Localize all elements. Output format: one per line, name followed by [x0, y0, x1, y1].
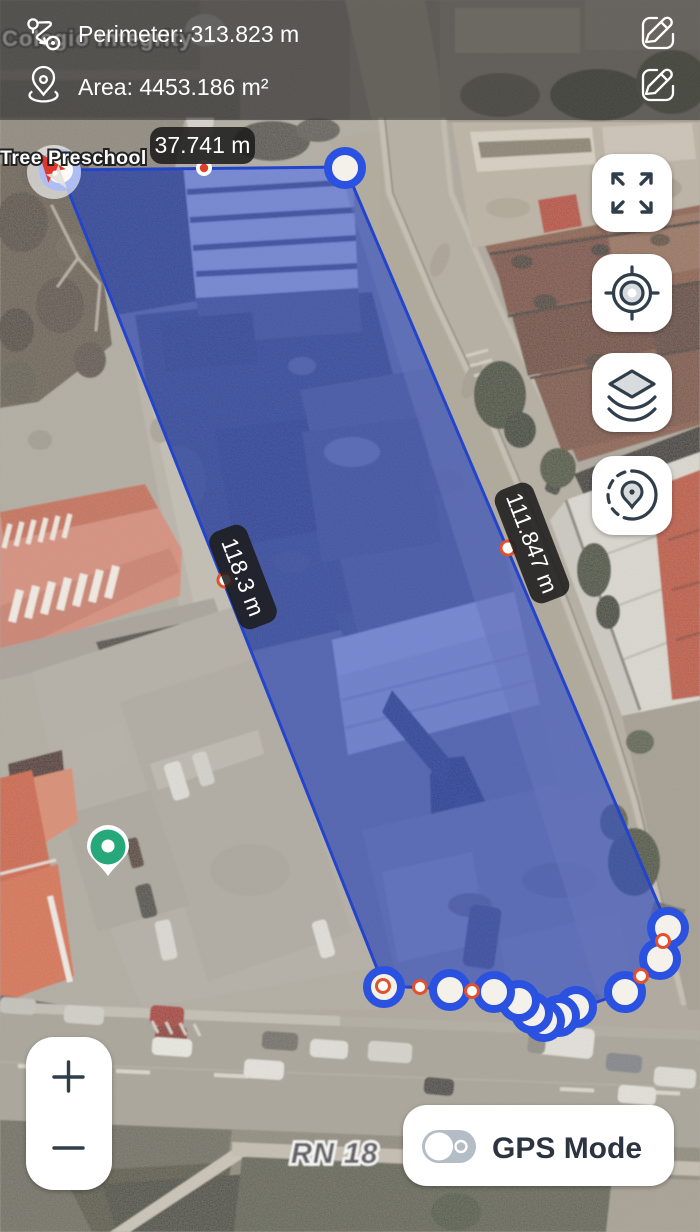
svg-text:Tree Preschool: Tree Preschool [0, 147, 147, 169]
svg-text:37.741 m: 37.741 m [155, 132, 251, 158]
svg-text:Perimeter: 313.823 m: Perimeter: 313.823 m [78, 21, 299, 47]
svg-text:RN 18: RN 18 [291, 1138, 378, 1170]
svg-text:Area: 4453.186 m²: Area: 4453.186 m² [78, 74, 269, 100]
svg-text:GPS Mode: GPS Mode [492, 1132, 642, 1165]
